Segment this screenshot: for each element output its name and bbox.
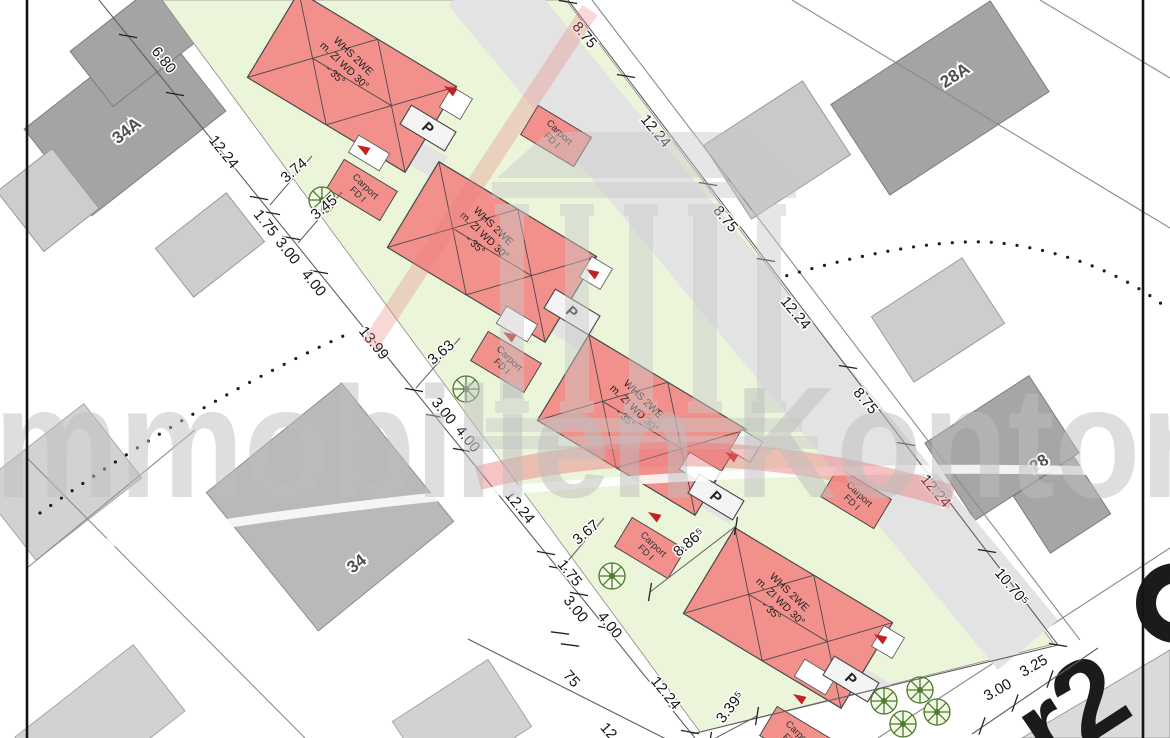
tree-icon [871,688,897,714]
site-plan-page: 34A 34 28A 28 r2 [0,0,1170,738]
tree-icon [890,711,916,737]
watermark-text: Immobilien Kontor [0,355,1170,531]
site-plan-drawing: 34A 34 28A 28 r2 [0,0,1170,738]
tree-icon [924,699,950,725]
tree-icon [599,563,625,589]
